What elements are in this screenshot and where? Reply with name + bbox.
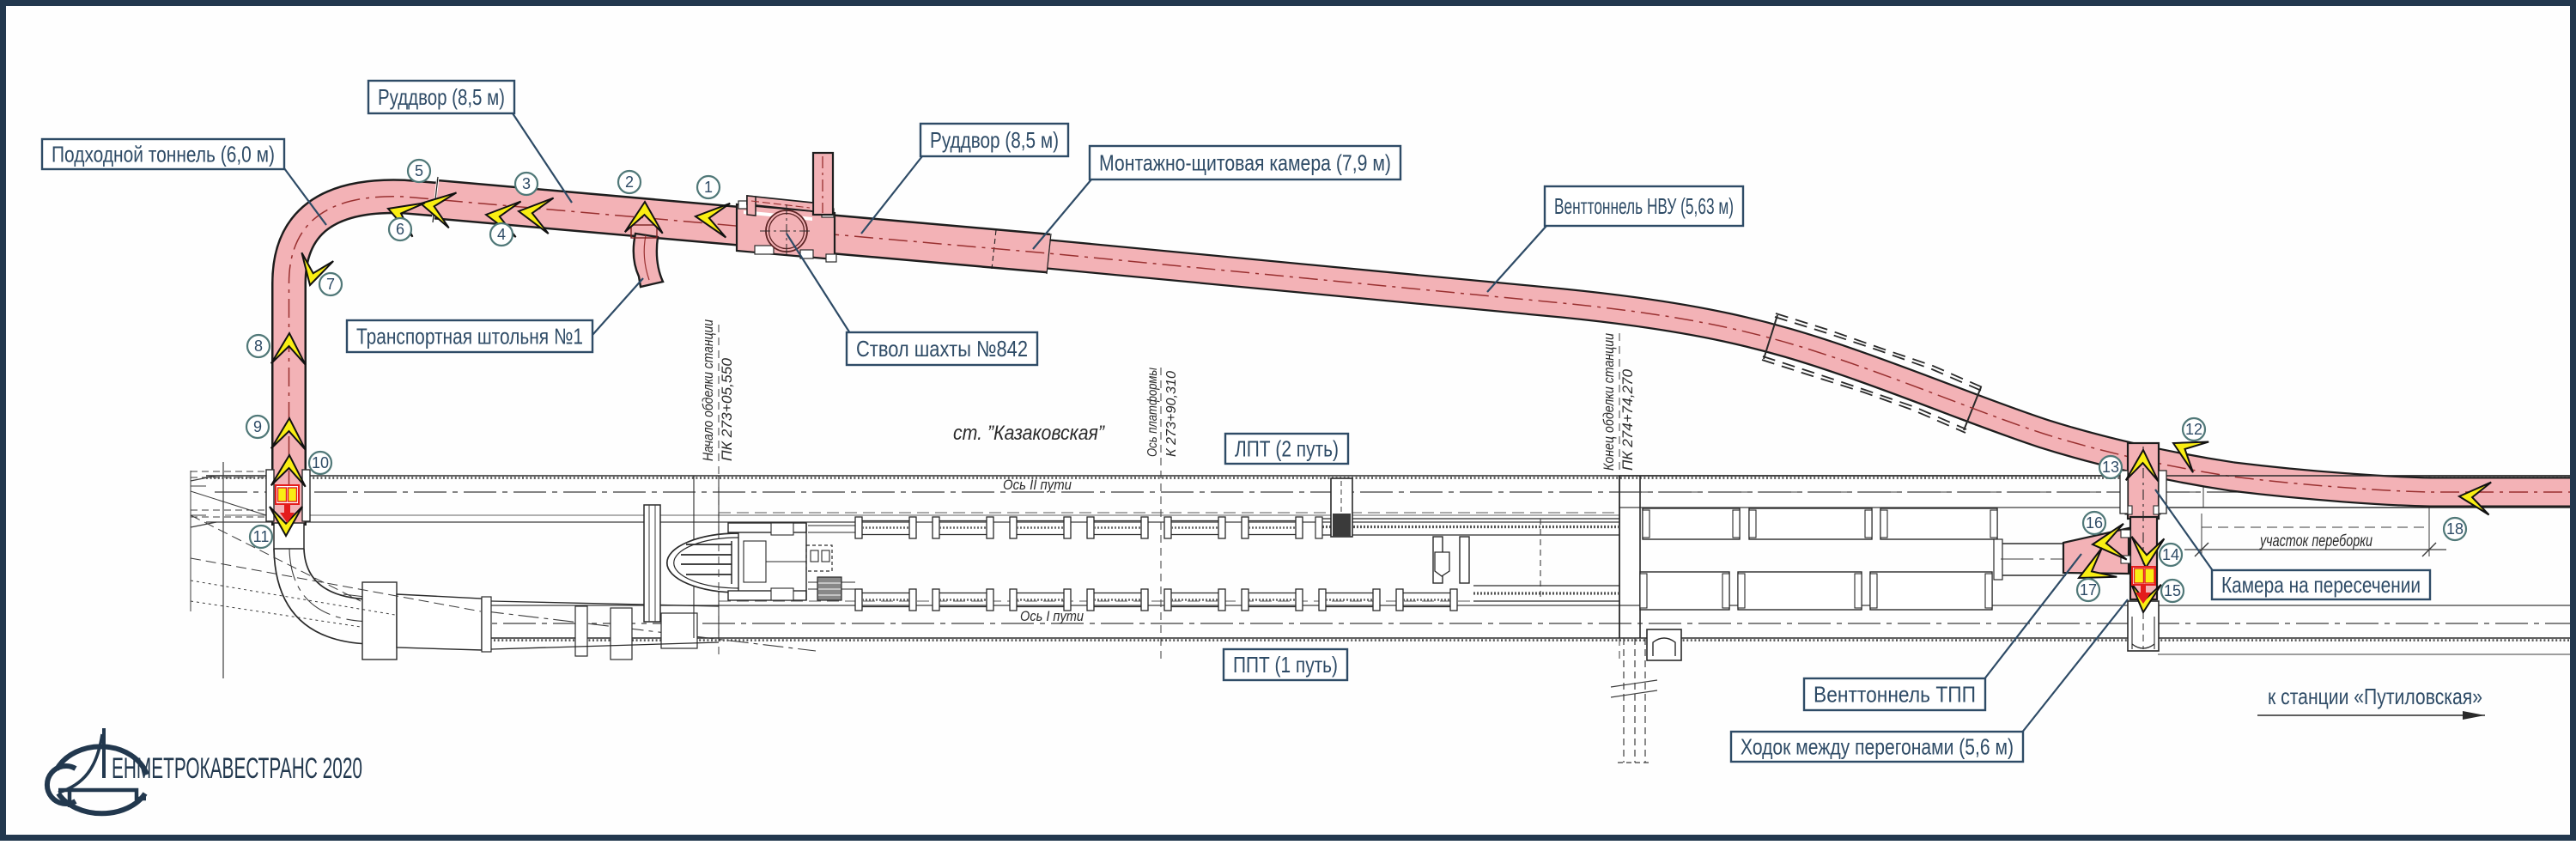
svg-text:Монтажно-щитовая камера (7,9 м: Монтажно-щитовая камера (7,9 м) — [1099, 149, 1391, 175]
svg-text:ЕНМЕТРОКАВЕСТРАНС 2020: ЕНМЕТРОКАВЕСТРАНС 2020 — [112, 752, 362, 785]
svg-text:ПК 273+05,550: ПК 273+05,550 — [719, 357, 735, 461]
svg-text:14: 14 — [2162, 546, 2179, 563]
svg-text:Венттоннель НВУ (5,63 м): Венттоннель НВУ (5,63 м) — [1554, 193, 1734, 219]
svg-text:Ось I пути: Ось I пути — [1020, 608, 1084, 624]
svg-text:12: 12 — [2185, 421, 2202, 438]
svg-text:17: 17 — [2080, 581, 2097, 599]
svg-text:13: 13 — [2102, 459, 2119, 476]
svg-text:3: 3 — [522, 175, 531, 192]
svg-text:Начало обделки станции: Начало обделки станции — [700, 319, 716, 461]
svg-text:8: 8 — [254, 337, 263, 355]
svg-text:к станции «Путиловская»: к станции «Путиловская» — [2268, 684, 2482, 709]
svg-text:6: 6 — [396, 221, 404, 238]
svg-text:Камера на пересечении: Камера на пересечении — [2221, 572, 2421, 598]
svg-text:4: 4 — [497, 226, 506, 243]
svg-text:Транспортная штольня №1: Транспортная штольня №1 — [356, 323, 583, 349]
svg-text:Ствол шахты №842: Ствол шахты №842 — [856, 336, 1028, 362]
svg-text:18: 18 — [2446, 520, 2464, 538]
svg-text:К 273+90,310: К 273+90,310 — [1164, 371, 1179, 457]
svg-text:Ходок между перегонами (5,6 м): Ходок между перегонами (5,6 м) — [1741, 733, 2014, 759]
svg-text:15: 15 — [2164, 582, 2181, 599]
svg-text:5: 5 — [415, 162, 423, 179]
svg-text:9: 9 — [253, 418, 262, 435]
svg-text:Руддвор (8,5 м): Руддвор (8,5 м) — [930, 127, 1059, 153]
svg-text:11: 11 — [253, 528, 270, 545]
svg-text:ПК 274+74,270: ПК 274+74,270 — [1619, 368, 1636, 471]
svg-text:7: 7 — [326, 276, 335, 293]
svg-text:1: 1 — [704, 179, 713, 196]
svg-text:Венттоннель ТПП: Венттоннель ТПП — [1814, 681, 1976, 707]
svg-text:10: 10 — [312, 454, 329, 471]
svg-text:2: 2 — [625, 173, 634, 191]
svg-text:Подходной тоннель (6,0 м): Подходной тоннель (6,0 м) — [52, 141, 275, 167]
svg-text:ППТ (1 путь): ППТ (1 путь) — [1233, 652, 1338, 678]
svg-text:ст. ”Казаковская”: ст. ”Казаковская” — [953, 422, 1105, 445]
svg-text:ЛПТ (2 путь): ЛПТ (2 путь) — [1235, 435, 1339, 461]
svg-text:16: 16 — [2086, 514, 2103, 532]
svg-text:Ось платформы: Ось платформы — [1145, 368, 1160, 457]
svg-text:участок переборки: участок переборки — [2258, 532, 2372, 550]
svg-text:Руддвор (8,5 м): Руддвор (8,5 м) — [378, 84, 505, 110]
svg-text:Ось II пути: Ось II пути — [1003, 477, 1072, 493]
svg-text:Конец обделки станции: Конец обделки станции — [1601, 333, 1617, 471]
